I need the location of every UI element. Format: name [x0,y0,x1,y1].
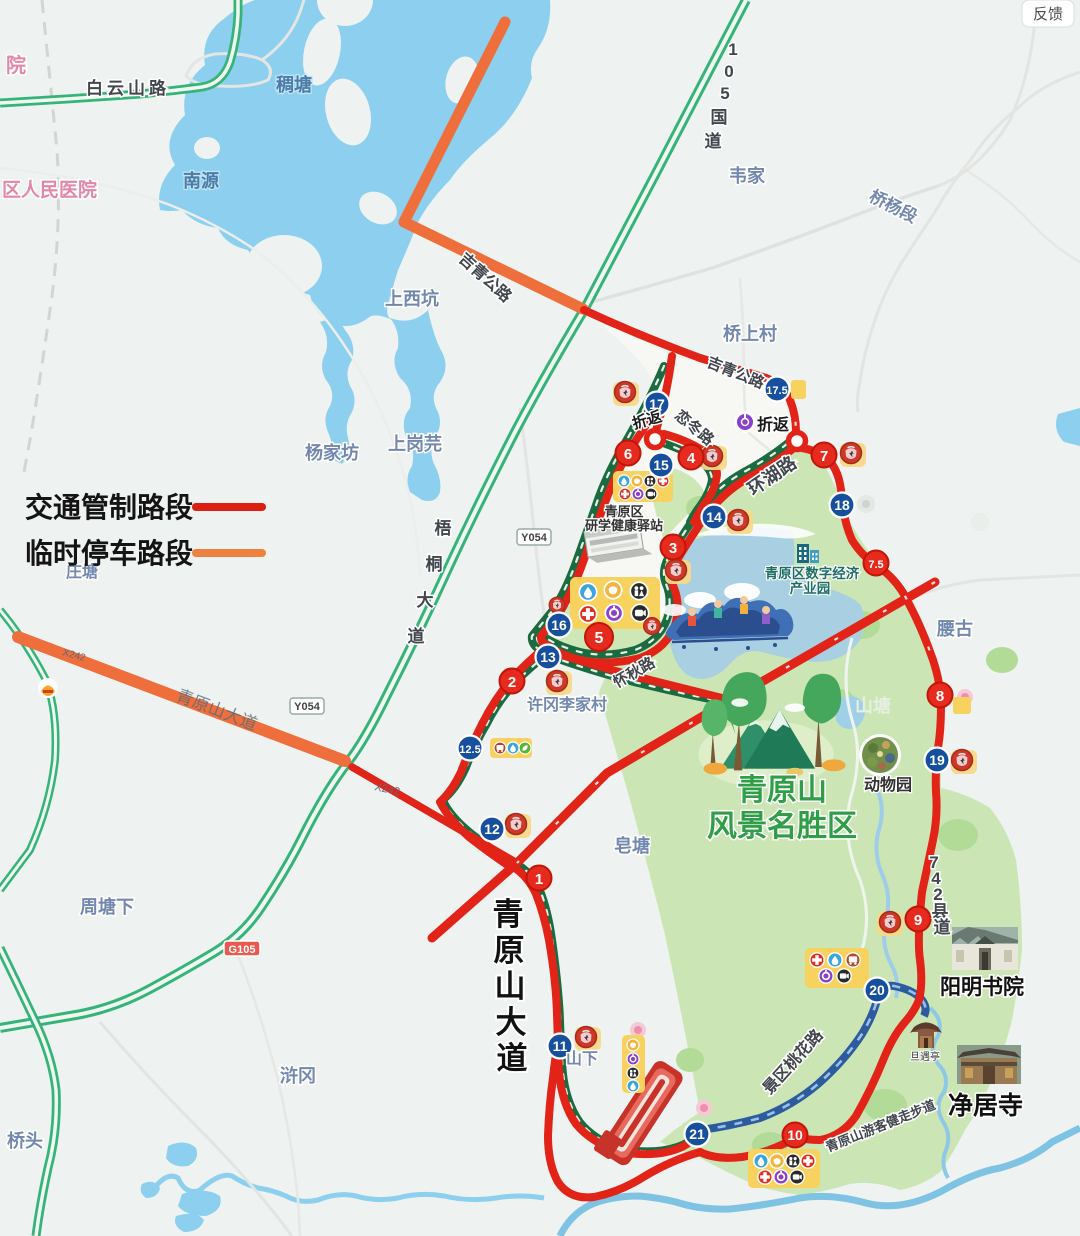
svg-text:山下: 山下 [566,1050,598,1068]
svg-text:桥头: 桥头 [7,1130,43,1151]
svg-text:折返: 折返 [757,415,789,434]
svg-text:桥上村: 桥上村 [723,323,777,344]
svg-text:南源: 南源 [183,170,219,191]
svg-text:7: 7 [820,448,828,465]
svg-text:山: 山 [495,969,526,1004]
svg-text:上岗芫: 上岗芫 [388,433,442,454]
svg-text:19: 19 [929,752,945,768]
svg-text:腰古: 腰古 [936,618,973,639]
svg-text:梧: 梧 [435,518,452,538]
svg-text:6: 6 [624,446,632,463]
svg-text:原: 原 [494,933,525,968]
svg-text:道: 道 [705,131,722,151]
svg-text:G105: G105 [229,944,256,956]
svg-text:道: 道 [408,626,425,646]
svg-text:动物园: 动物园 [864,775,912,794]
svg-text:14: 14 [706,509,722,525]
svg-text:5: 5 [720,84,729,103]
svg-text:山塘: 山塘 [855,695,891,716]
svg-text:Y054: Y054 [521,532,548,544]
svg-text:1: 1 [535,871,543,888]
svg-text:16: 16 [551,617,567,633]
svg-text:9: 9 [914,912,922,929]
svg-text:Y054: Y054 [294,701,321,713]
svg-text:21: 21 [689,1126,705,1142]
svg-text:17.5: 17.5 [766,385,787,397]
svg-text:研学健康驿站: 研学健康驿站 [585,518,663,533]
svg-text:阳明书院: 阳明书院 [940,975,1024,999]
svg-text:青原山: 青原山 [737,774,827,807]
svg-text:皂塘: 皂塘 [614,835,650,856]
svg-text:周塘下: 周塘下 [80,896,134,917]
svg-text:0: 0 [724,62,733,81]
svg-text:白云山路: 白云山路 [86,78,170,98]
svg-text:国: 国 [711,108,728,127]
svg-text:杨家坊: 杨家坊 [305,442,359,463]
svg-text:15: 15 [653,457,669,473]
svg-text:风景名胜区: 风景名胜区 [707,810,857,843]
svg-text:大: 大 [417,590,434,610]
svg-text:4: 4 [687,450,696,467]
svg-text:道: 道 [497,1041,528,1076]
svg-text:交通管制路段: 交通管制路段 [25,491,193,523]
svg-text:净居寺: 净居寺 [948,1091,1023,1120]
svg-text:道: 道 [934,917,951,937]
svg-text:5: 5 [595,630,604,647]
svg-text:7.5: 7.5 [868,559,883,571]
svg-text:区人民医院: 区人民医院 [2,178,97,201]
svg-text:13: 13 [540,649,556,665]
svg-text:浒冈: 浒冈 [280,1065,316,1086]
svg-text:产业园: 产业园 [790,580,831,596]
svg-text:20: 20 [869,982,885,998]
svg-text:韦家: 韦家 [729,165,766,186]
svg-text:青: 青 [493,897,524,932]
svg-text:上西坑: 上西坑 [385,288,439,309]
svg-text:12.5: 12.5 [459,744,480,756]
svg-text:1: 1 [728,40,737,59]
svg-text:临时停车路段: 临时停车路段 [25,537,193,569]
svg-text:8: 8 [936,688,944,705]
svg-text:稠塘: 稠塘 [276,74,312,95]
svg-text:青原区数字经济: 青原区数字经济 [765,565,860,581]
svg-text:桐: 桐 [426,554,443,574]
svg-text:大: 大 [496,1005,527,1040]
svg-text:旦遇亭: 旦遇亭 [910,1050,940,1063]
svg-text:许冈李家村: 许冈李家村 [527,695,607,714]
svg-text:院: 院 [6,53,26,77]
svg-text:2: 2 [508,674,516,691]
svg-text:12: 12 [484,821,500,837]
svg-text:10: 10 [787,1127,803,1143]
svg-text:反馈: 反馈 [1033,6,1063,23]
svg-text:3: 3 [669,540,677,557]
svg-text:青原区: 青原区 [604,504,643,519]
svg-text:18: 18 [834,497,850,513]
